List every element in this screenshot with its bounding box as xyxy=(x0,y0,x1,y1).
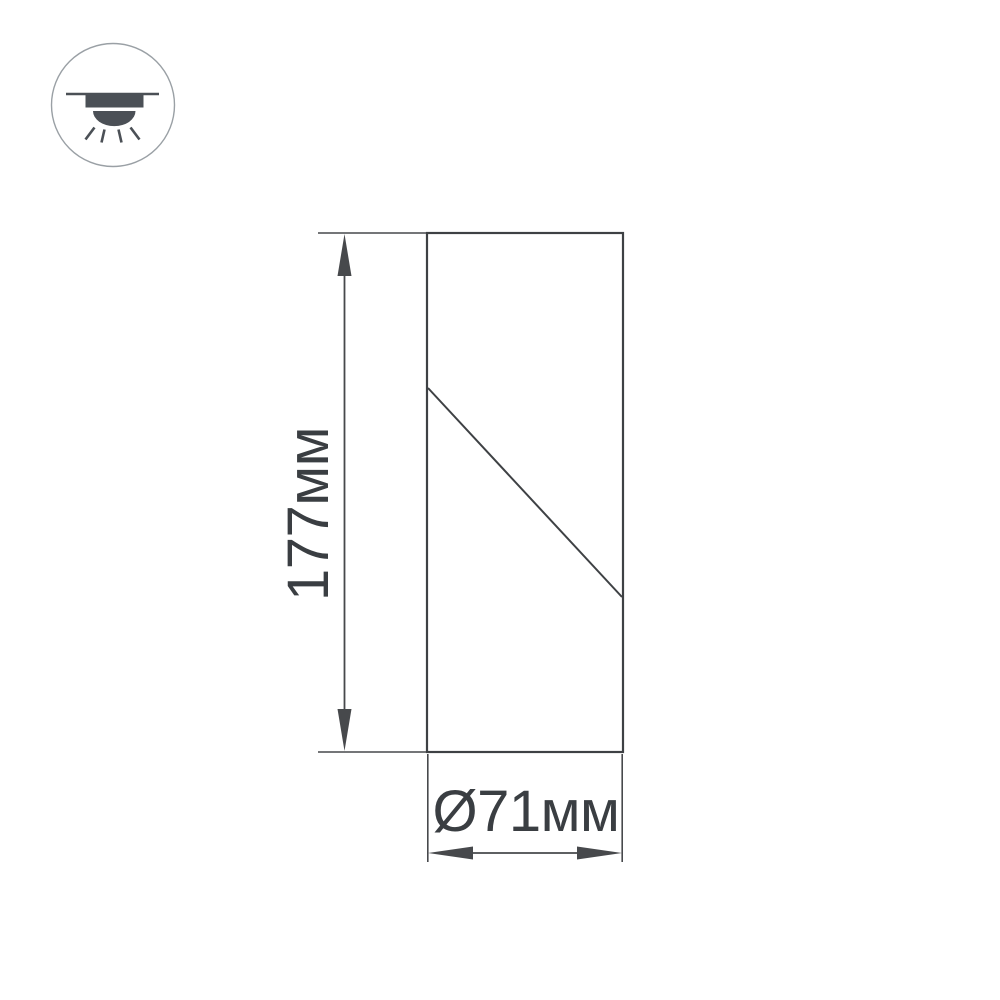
product-dimensions-drawing: 177мм Ø71мм xyxy=(0,0,1000,1000)
diameter-arrowhead-right xyxy=(577,847,622,860)
fixture-outline xyxy=(427,233,623,752)
height-arrowhead-up xyxy=(338,234,352,276)
height-dimension-label: 177мм xyxy=(280,427,338,601)
fixture-diagonal-cut-line xyxy=(428,388,622,597)
diameter-arrowhead-left xyxy=(428,847,473,860)
diameter-dimension-label: Ø71мм xyxy=(433,783,620,841)
dimension-drawing-canvas xyxy=(0,0,1000,1000)
height-arrowhead-down xyxy=(338,709,352,751)
